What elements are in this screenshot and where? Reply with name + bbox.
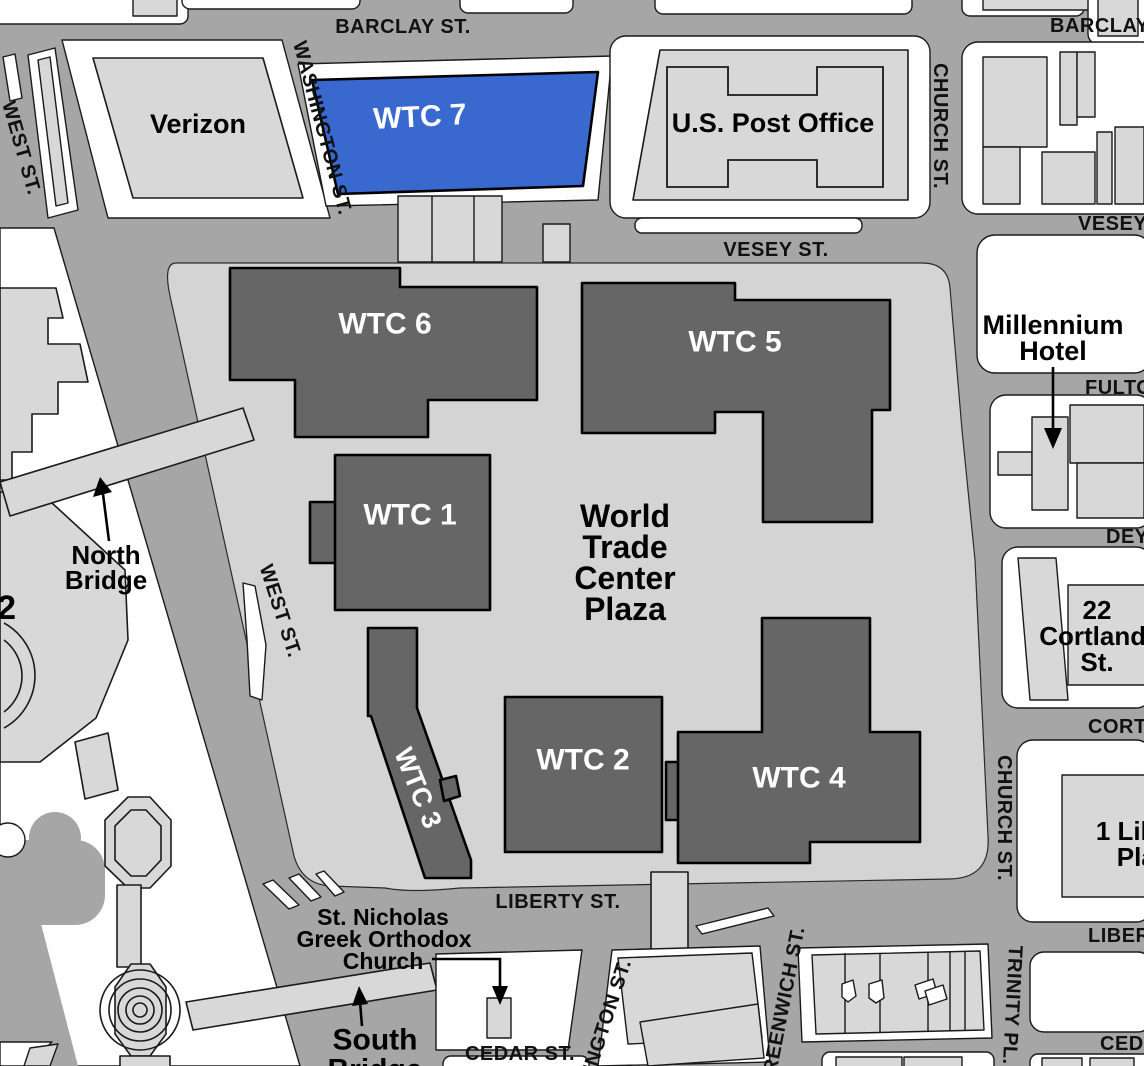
street-label-cedar: CEDAR ST.: [465, 1043, 575, 1065]
street-label-cortlandt: CORTLANDT ST.: [1088, 716, 1144, 738]
hotel-west-wing: [998, 452, 1032, 475]
lot-notch: [869, 980, 884, 1003]
building-footprint: [983, 57, 1047, 147]
city-block: [460, 0, 573, 13]
verizon-label: Verizon: [150, 109, 246, 139]
building-footprint: [1097, 132, 1112, 204]
wtc3-annex: [440, 776, 460, 801]
building-footprint: [1042, 152, 1095, 204]
street-label-vesey-right: VESEY ST.: [1078, 213, 1144, 235]
street-label-church-lower: CHURCH ST.: [993, 755, 1015, 881]
street-label-barclay-right: BARCLAY ST.: [1050, 15, 1144, 37]
building-footprint: [1077, 52, 1095, 117]
liberty-st-walkway: [651, 872, 688, 954]
vesey-median: [635, 218, 862, 233]
wtc7-walkway: [398, 196, 502, 262]
post-office-label: U.S. Post Office: [672, 108, 875, 138]
north-bridge-label: Bridge: [65, 565, 147, 595]
city-block: [655, 0, 912, 14]
street-label-cedar-right: CEDAR ST.: [1100, 1033, 1144, 1055]
st-nicholas-church-building: [487, 998, 511, 1038]
cortlandt22-label: St.: [1080, 647, 1113, 677]
south-bridge-label: South: [333, 1024, 418, 1057]
wtc7-building: [312, 72, 598, 194]
millennium-hotel-label: Hotel: [1019, 336, 1087, 366]
building-footprint: [836, 1057, 902, 1066]
walkway-connector: [117, 885, 141, 967]
millennium-hotel-block: [990, 395, 1144, 528]
side-road-bulb: [29, 812, 81, 864]
wtc6-label: WTC 6: [338, 308, 431, 341]
building-lots: [812, 951, 984, 1034]
wtc4-label: WTC 4: [752, 762, 846, 795]
wtc-site-map: BARCLAY ST. BARCLAY ST. WASHINGTON ST. W…: [0, 0, 1144, 1066]
building-footprint: [983, 147, 1020, 204]
building-footprint: [1077, 463, 1144, 518]
south-bridge-label: Bridge: [327, 1054, 422, 1066]
octagon-fountain: [115, 964, 166, 1056]
wtc7-label: WTC 7: [373, 98, 468, 136]
street-label-dey: DEY ST.: [1106, 526, 1144, 548]
building-footprint: [1115, 127, 1144, 204]
building-footprint: [1042, 1058, 1082, 1066]
building-2-label: 2: [0, 589, 16, 627]
street-label-barclay: BARCLAY ST.: [335, 16, 471, 38]
street-label-liberty-right: LIBERTY ST.: [1088, 925, 1144, 947]
street-label-vesey: VESEY ST.: [723, 239, 828, 261]
st-nicholas-label: Church: [343, 948, 424, 974]
wtc5-label: WTC 5: [688, 326, 781, 359]
walkway-stub: [120, 1056, 170, 1066]
wtc1-building: [335, 455, 490, 610]
wtc1-label: WTC 1: [363, 499, 456, 532]
city-block: [1030, 952, 1144, 1032]
northeast-block: [962, 42, 1144, 214]
building-footprint: [133, 0, 177, 16]
wtc1-annex: [310, 502, 336, 563]
plaza-label: Plaza: [584, 591, 666, 627]
wtc2-label: WTC 2: [536, 744, 629, 777]
street-label-liberty: LIBERTY ST.: [495, 891, 620, 913]
building-footprint: [1070, 405, 1144, 463]
walkway-piece: [543, 224, 570, 262]
building-footprint: [1060, 52, 1077, 125]
building-footprint: [904, 1057, 962, 1066]
city-block: [182, 0, 360, 9]
building-footprint: [983, 0, 1097, 10]
one-liberty-plaza-label: Plaza: [1117, 842, 1144, 872]
street-label-fulton: FULTON ST.: [1085, 377, 1144, 399]
building-footprint: [1090, 1058, 1134, 1066]
street-label-church-top: CHURCH ST.: [929, 63, 951, 189]
